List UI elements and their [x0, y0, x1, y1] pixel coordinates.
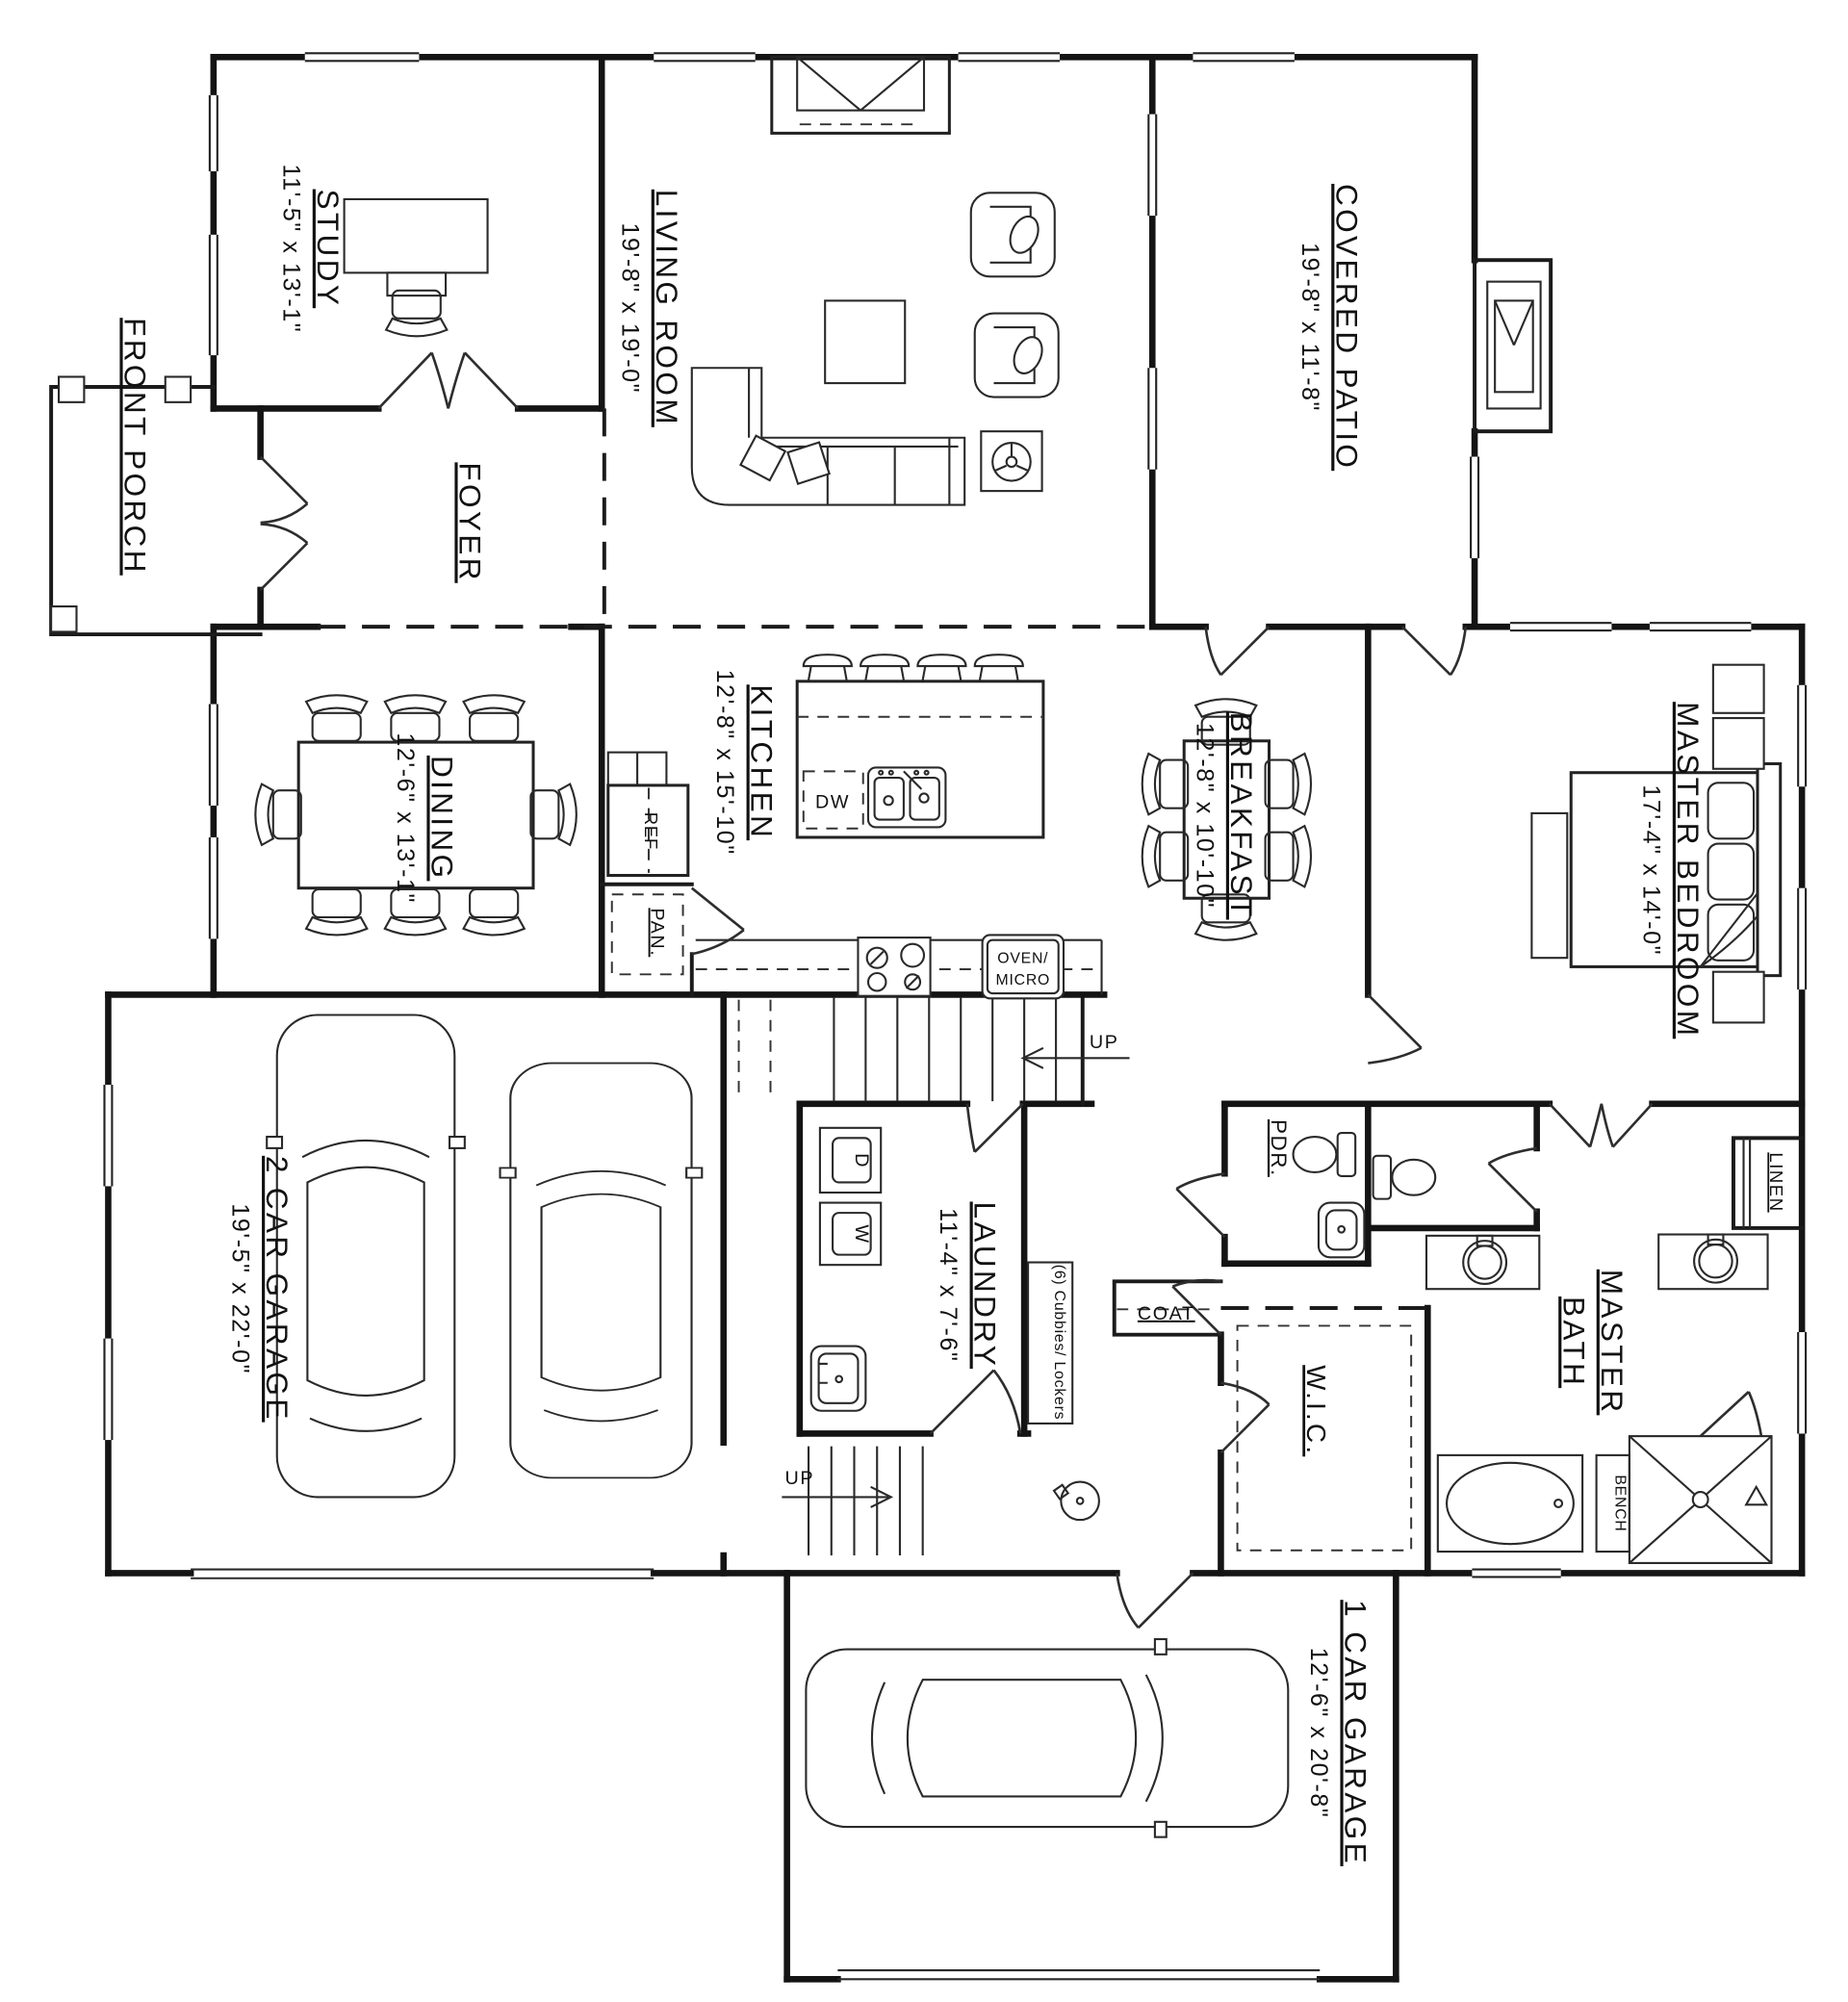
svg-text:BENCH: BENCH [1611, 1475, 1628, 1531]
svg-text:DINING: DINING [425, 756, 460, 881]
pillow [1708, 783, 1754, 838]
nightstand [1713, 718, 1764, 769]
svg-text:12'-8" x 10'-10": 12'-8" x 10'-10" [1191, 723, 1218, 909]
svg-text:(6) Cubbies/ Lockers: (6) Cubbies/ Lockers [1051, 1265, 1067, 1421]
room-label-covered-patio: COVERED PATIO 19'-8" x 11'-8" [1296, 184, 1365, 471]
svg-text:19'-5" x 22'-0": 19'-5" x 22'-0" [227, 1203, 254, 1374]
laundry-mudroom-door [931, 1371, 1021, 1434]
porch-column [166, 376, 191, 401]
svg-text:KITCHEN: KITCHEN [745, 684, 780, 840]
window [1466, 457, 1483, 558]
headboard [1758, 764, 1781, 976]
svg-text:COVERED PATIO: COVERED PATIO [1329, 184, 1364, 471]
room-label-two-car-garage: 2 CAR GARAGE 19'-5" x 22'-0" [227, 1156, 295, 1423]
room-label-kitchen: KITCHEN 12'-8" x 15'-10" [711, 670, 780, 856]
garage-entry-door [1116, 1573, 1193, 1628]
study-desk [345, 199, 488, 272]
suv-right [500, 1064, 703, 1478]
powder-room-fixtures [1294, 1133, 1365, 1257]
room-label-study: STUDY 11'-5" x 13'-1" [277, 164, 346, 333]
svg-text:LIVING ROOM: LIVING ROOM [650, 190, 684, 427]
master-bath-double-door [1550, 1104, 1653, 1147]
master-entry-door [1368, 994, 1421, 1063]
side-table [981, 431, 1041, 491]
svg-text:MASTER: MASTER [1595, 1270, 1630, 1416]
svg-text:LAUNDRY: LAUNDRY [968, 1201, 1003, 1369]
window [1793, 685, 1810, 786]
back-staircase [782, 1447, 922, 1555]
label-bench: BENCH [1611, 1475, 1628, 1531]
svg-text:COAT: COAT [1138, 1303, 1195, 1324]
label-stairs-up-main: UP [1090, 1032, 1119, 1053]
svg-text:FRONT PORCH: FRONT PORCH [118, 318, 153, 576]
label-dryer: D [851, 1153, 872, 1168]
pillow [1708, 905, 1754, 961]
powder-door [1176, 1173, 1224, 1237]
svg-text:12'-8" x 15'-10": 12'-8" x 15'-10" [711, 670, 738, 856]
room-label-wic: W.I.C. [1301, 1365, 1331, 1456]
window [1143, 368, 1161, 469]
fireplace [772, 57, 950, 133]
room-label-breakfast: BREAKFAST 12'-8" x 10'-10" [1191, 712, 1259, 920]
svg-text:19'-8" x 19'-0": 19'-8" x 19'-0" [616, 222, 643, 394]
room-label-living-room: LIVING ROOM 19'-8" x 19'-0" [616, 190, 684, 427]
kitchen-fixtures [608, 654, 1102, 998]
svg-text:MICRO: MICRO [996, 972, 1051, 988]
label-stairs-up-back: UP [785, 1468, 815, 1489]
window [654, 48, 755, 65]
window [99, 1085, 116, 1186]
window [1143, 115, 1161, 216]
window [1650, 618, 1751, 635]
powder-toilet [1294, 1133, 1356, 1176]
shower [1630, 1436, 1772, 1563]
svg-text:BATH: BATH [1556, 1296, 1591, 1388]
svg-text:FOYER: FOYER [453, 462, 488, 582]
window [1793, 888, 1810, 989]
svg-text:BREAKFAST: BREAKFAST [1224, 712, 1259, 920]
patio-breakfast-door [1206, 627, 1270, 675]
svg-text:LINEN: LINEN [1766, 1152, 1786, 1212]
wc-toilet [1373, 1156, 1436, 1199]
suv-left [267, 1014, 465, 1497]
nightstand [1713, 972, 1764, 1023]
laundry-hall-door [967, 1104, 1023, 1152]
svg-text:W.I.C.: W.I.C. [1301, 1365, 1331, 1456]
svg-text:MASTER BEDROOM: MASTER BEDROOM [1671, 702, 1706, 1039]
window [1793, 1332, 1810, 1433]
window [959, 48, 1060, 65]
svg-text:12'-6" x 20'-8": 12'-6" x 20'-8" [1305, 1648, 1332, 1819]
water-closet-door [1489, 1148, 1537, 1212]
svg-text:1 CAR GARAGE: 1 CAR GARAGE [1339, 1600, 1373, 1866]
svg-text:DW: DW [815, 792, 850, 813]
svg-text:17'-4" x 14'-0": 17'-4" x 14'-0" [1637, 784, 1664, 956]
window [1193, 48, 1294, 65]
svg-text:STUDY: STUDY [311, 190, 346, 309]
shower-door [1701, 1392, 1761, 1436]
floor-plan-drawing: FRONT PORCH STUDY 11'-5" x 13'-1" LIVING… [0, 0, 1848, 2002]
label-dishwasher: DW [815, 792, 850, 813]
water-heater [1054, 1482, 1099, 1521]
patio-master-door [1402, 627, 1466, 675]
svg-text:11'-5" x 13'-1": 11'-5" x 13'-1" [277, 164, 304, 333]
svg-text:12'-6" x 13'-1": 12'-6" x 13'-1" [392, 732, 419, 904]
vanity-left [1426, 1236, 1539, 1289]
armchair [975, 314, 1059, 398]
sectional-sofa [692, 368, 964, 504]
porch-column [59, 376, 84, 401]
patio-fireplace [1475, 260, 1551, 431]
sedan [806, 1639, 1288, 1837]
study-chair [386, 291, 447, 336]
porch-column [51, 606, 76, 631]
svg-text:D: D [851, 1153, 872, 1168]
svg-text:W: W [851, 1224, 872, 1244]
svg-text:11'-4" x 7'-6": 11'-4" x 7'-6" [935, 1208, 962, 1362]
floor-plan-page: FRONT PORCH STUDY 11'-5" x 13'-1" LIVING… [0, 0, 1848, 2002]
room-label-coat: COAT [1138, 1303, 1195, 1324]
vanity-right [1658, 1235, 1767, 1290]
window [205, 235, 222, 355]
svg-text:2 CAR GARAGE: 2 CAR GARAGE [260, 1156, 295, 1423]
svg-text:REF: REF [641, 812, 661, 850]
garage-cars [267, 1014, 1288, 1836]
label-washer: W [851, 1224, 872, 1244]
kitchen-sink [868, 767, 945, 827]
pantry-door [692, 888, 744, 955]
room-label-master-bedroom: MASTER BEDROOM 17'-4" x 14'-0" [1637, 702, 1706, 1039]
svg-text:PAN.: PAN. [647, 908, 668, 957]
linen-shelves [1744, 1138, 1751, 1228]
room-label-front-porch: FRONT PORCH [118, 318, 153, 576]
cooktop [858, 937, 930, 996]
room-label-dining: DINING 12'-6" x 13'-1" [392, 732, 460, 904]
svg-text:UP: UP [785, 1468, 815, 1489]
room-label-master-bath: MASTER BATH [1556, 1270, 1630, 1416]
svg-text:OVEN/: OVEN/ [997, 950, 1048, 966]
room-label-one-car-garage: 1 CAR GARAGE 12'-6" x 20'-8" [1305, 1600, 1373, 1866]
living-room-furniture [692, 57, 1059, 504]
bathtub [1438, 1455, 1582, 1552]
chest [1713, 665, 1764, 713]
laundry-sink [811, 1347, 866, 1411]
label-pantry: PAN. [647, 908, 668, 957]
window [205, 95, 222, 171]
window [205, 705, 222, 806]
room-label-foyer: FOYER [453, 462, 488, 582]
room-label-powder: PDR. [1267, 1119, 1291, 1177]
room-label-laundry: LAUNDRY 11'-4" x 7'-6" [935, 1201, 1003, 1369]
study-furniture [345, 199, 488, 336]
svg-text:19'-8" x 11'-8": 19'-8" x 11'-8" [1296, 243, 1323, 412]
room-label-linen: LINEN [1766, 1152, 1786, 1212]
pillow [1708, 844, 1754, 900]
window [1472, 1564, 1560, 1581]
main-staircase [834, 997, 1129, 1101]
dresser [1531, 813, 1567, 958]
entry-double-door [261, 457, 308, 590]
wic-door [1220, 1383, 1269, 1452]
label-refrigerator: REF [641, 812, 661, 850]
svg-text:UP: UP [1090, 1032, 1119, 1053]
label-cubbies: (6) Cubbies/ Lockers [1051, 1265, 1067, 1421]
window [99, 1339, 116, 1440]
svg-text:PDR.: PDR. [1267, 1119, 1291, 1177]
front-porch-structure [51, 376, 260, 634]
window [205, 837, 222, 938]
study-double-door [378, 352, 518, 408]
armchair [971, 192, 1055, 276]
window [305, 48, 420, 65]
powder-sink [1319, 1203, 1364, 1258]
coffee-table [825, 300, 905, 383]
window [1510, 618, 1611, 635]
